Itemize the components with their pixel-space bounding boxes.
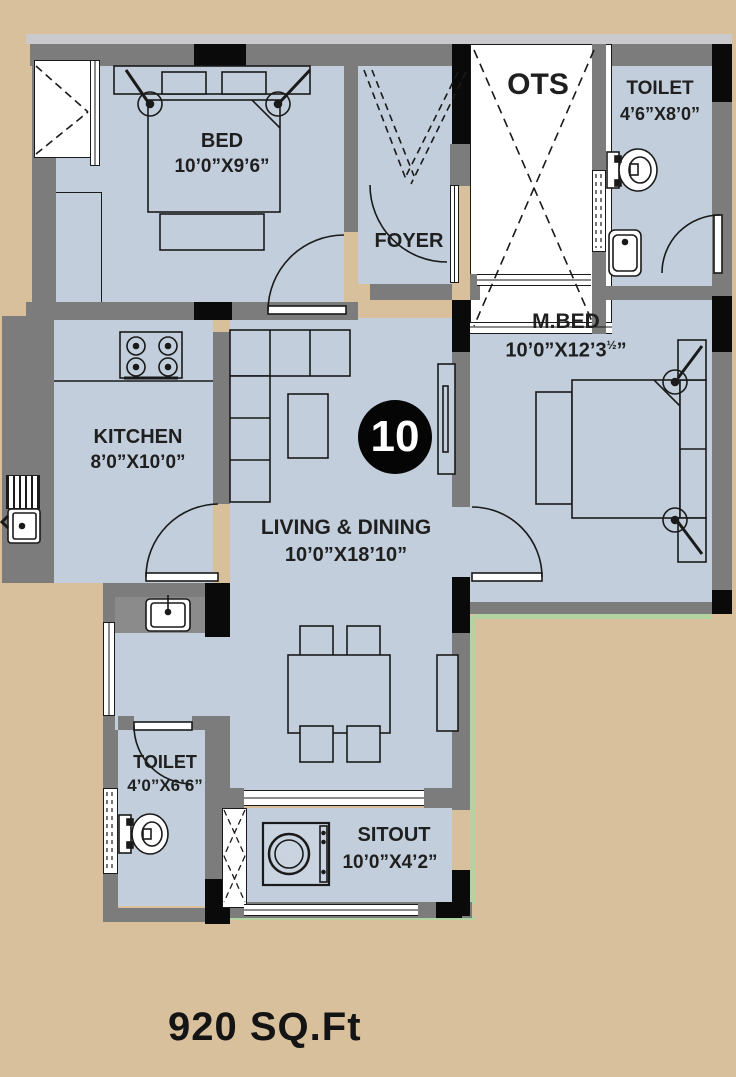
foyer-label: FOYER — [375, 230, 444, 253]
ots-label: OTS — [507, 68, 569, 102]
mbed-north-window — [477, 274, 591, 286]
wall-corridor-west-upper — [103, 597, 115, 622]
living-dining-label: LIVING & DINING — [261, 516, 431, 540]
wall-living-south-a — [230, 788, 244, 808]
wall-toilet-bottom-north-a — [118, 716, 134, 730]
garden-strip-east — [470, 616, 475, 904]
sitout-south-window — [244, 904, 418, 916]
floor-plan: BED 10’0”X9’6” FOYER OTS TOILET 4’6”X8’0… — [26, 34, 732, 920]
sitout-dim: 10’0”X4’2” — [342, 852, 437, 874]
corridor-west-window — [103, 622, 115, 716]
total-area-label: 920 SQ.Ft — [168, 1005, 362, 1050]
master-bed-dim-suffix: ” — [617, 340, 627, 362]
kitchen-dim: 8’0”X10’0” — [90, 452, 185, 474]
master-bed-dim: 10’0”X12’3½” — [505, 338, 626, 363]
kitchen-floor — [54, 318, 213, 583]
kitchen-label: KITCHEN — [94, 426, 183, 449]
wall-mbed-south — [470, 602, 712, 614]
toilet-top-label: TOILET — [626, 78, 693, 100]
wall-bed-south — [26, 302, 358, 320]
sitout-label: SITOUT — [358, 824, 431, 847]
bed-window — [90, 60, 100, 166]
living-sitout-window — [244, 790, 424, 806]
accent-sitout-east — [452, 870, 470, 916]
sitout-duct — [222, 808, 247, 908]
master-bed-label: M.BED — [532, 310, 600, 334]
foyer-east-window — [450, 185, 459, 283]
accent-east-low — [712, 590, 732, 614]
wall-foyer-west-stub — [344, 66, 358, 232]
wall-toilet-top-south — [600, 286, 712, 300]
accent-mbed-west-bottom — [452, 577, 470, 633]
plinth-strip — [26, 34, 732, 44]
wall-foyer-east — [450, 144, 470, 186]
accent-bed-south — [194, 302, 232, 320]
mbed-door-passage-floor — [452, 507, 470, 577]
corner-ne — [712, 44, 732, 102]
washbasin-counter — [115, 597, 205, 633]
bed-bay-window — [34, 60, 92, 158]
accent-east-mid — [712, 296, 732, 352]
master-bed-dim-frac: ½ — [607, 338, 617, 352]
lintel-foyer-ots — [452, 44, 470, 144]
ots-vent — [592, 170, 606, 252]
wall-foyer-south — [370, 284, 452, 300]
toilet-top-dim: 4’6”X8’0” — [620, 104, 700, 125]
accent-corridor-east — [205, 583, 230, 637]
toilet-bottom-dim: 4’0”X6’6” — [127, 776, 203, 796]
bed-room-dim: 10’0”X9’6” — [174, 156, 269, 178]
bed-wardrobe — [56, 192, 102, 302]
master-bed-dim-main: 10’0”X12’3 — [505, 340, 606, 362]
unit-number-badge: 10 — [358, 400, 432, 474]
kitchen-drainboard — [6, 475, 40, 509]
lintel-top-bed — [194, 44, 246, 66]
wall-kitchen-west — [2, 316, 54, 583]
wall-kitchen-partition — [213, 332, 230, 504]
living-dining-dim: 10’0”X18’10” — [285, 544, 407, 567]
toilet-bottom-label: TOILET — [133, 752, 197, 773]
accent-mbed-west-top — [452, 300, 470, 352]
bed-room-label: BED — [201, 130, 243, 153]
toilet-bottom-vent — [103, 788, 118, 874]
garden-strip-mbed-south — [474, 614, 712, 619]
